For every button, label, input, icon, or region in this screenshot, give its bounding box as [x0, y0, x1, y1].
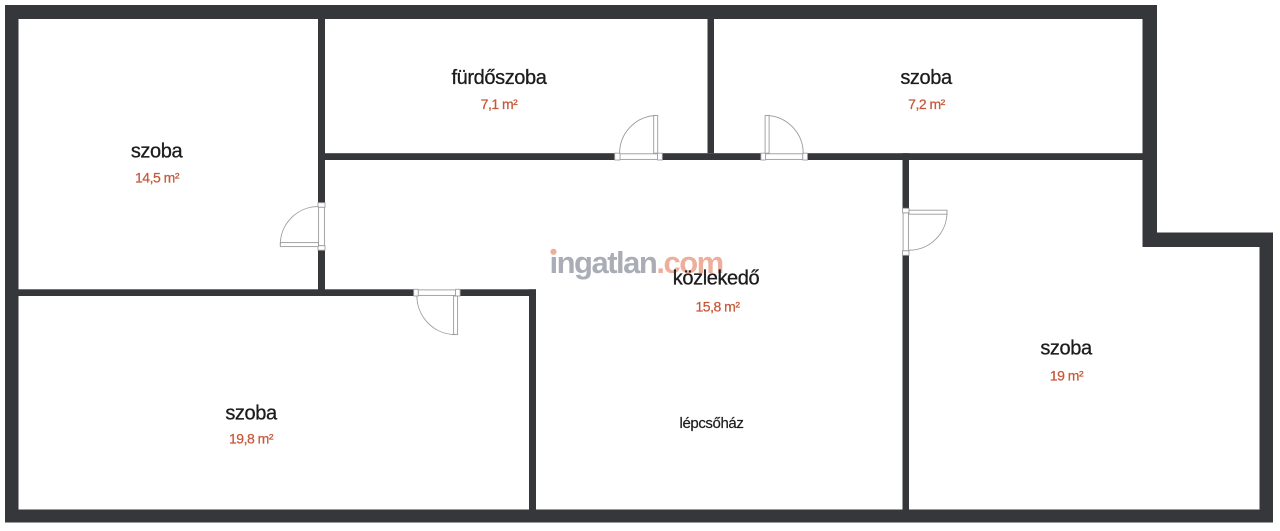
svg-text:szoba: szoba: [225, 403, 278, 425]
svg-text:közlekedő: közlekedő: [673, 268, 760, 290]
svg-text:szoba: szoba: [131, 141, 184, 163]
svg-text:7,1 m²: 7,1 m²: [481, 96, 519, 112]
svg-text:15,8 m²: 15,8 m²: [696, 299, 741, 315]
svg-text:fürdőszoba: fürdőszoba: [452, 67, 548, 89]
svg-text:14,5 m²: 14,5 m²: [135, 170, 180, 186]
svg-text:szoba: szoba: [1040, 338, 1093, 360]
svg-text:lépcsőház: lépcsőház: [680, 415, 744, 432]
svg-text:19 m²: 19 m²: [1050, 368, 1084, 384]
svg-text:19,8 m²: 19,8 m²: [229, 431, 274, 447]
svg-text:szoba: szoba: [900, 67, 953, 89]
svg-text:7,2 m²: 7,2 m²: [908, 96, 946, 112]
